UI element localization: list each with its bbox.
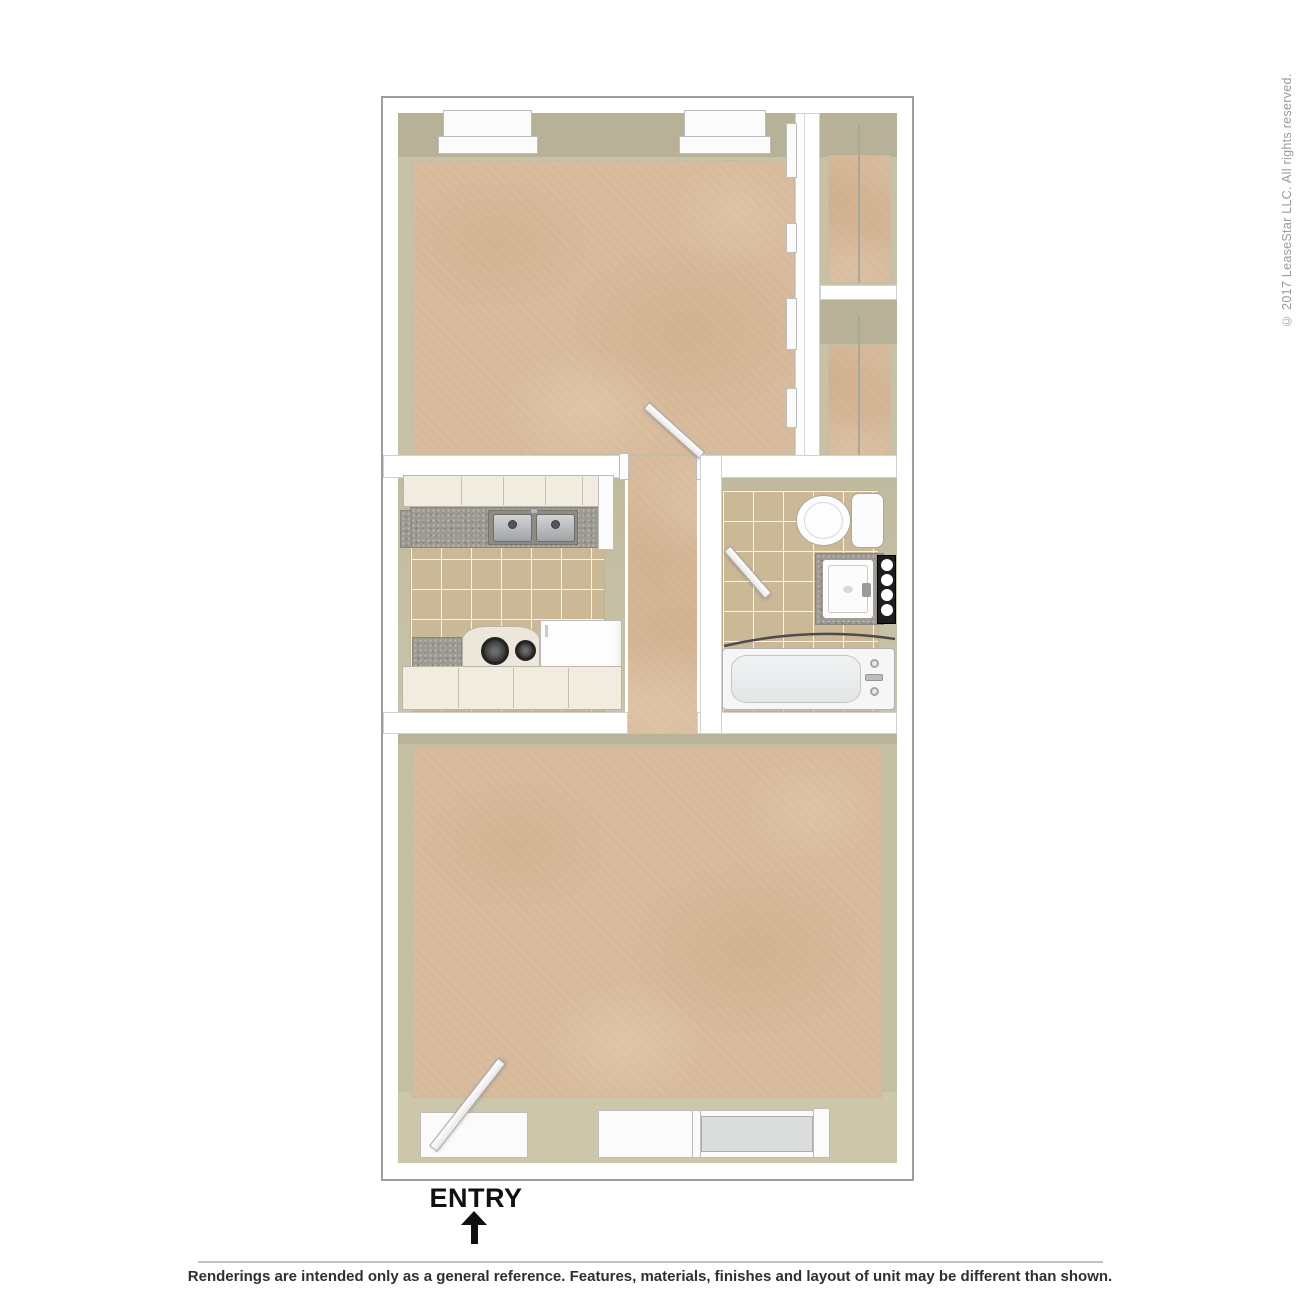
bedroom-window-2-sill <box>679 136 771 154</box>
sink-faucet <box>530 508 538 514</box>
bedroom-carpet <box>412 160 795 455</box>
bedroom-door-frame-left <box>619 453 629 480</box>
floor-plan-canvas <box>381 96 914 1181</box>
cabinet-door-line <box>513 668 514 708</box>
floor-plan-page: © 2017 LeaseStar LLC. All rights reserve… <box>0 0 1300 1300</box>
patio-frame-post-right <box>813 1108 830 1158</box>
bathtub-basin <box>731 655 861 703</box>
cabinet-door-line <box>458 668 459 708</box>
bedroom-window-1-sill <box>438 136 538 154</box>
stove-burner-left <box>481 637 509 665</box>
entry-label: ENTRY <box>396 1183 556 1214</box>
tub-handle-hot <box>870 659 879 668</box>
bathroom-left-wall <box>700 455 722 734</box>
sink-drain-right <box>551 520 560 529</box>
living-room-carpet <box>412 746 882 1098</box>
disclaimer-text: Renderings are intended only as a genera… <box>0 1268 1300 1285</box>
cabinet-door-line <box>568 668 569 708</box>
vanity-light-bulb <box>881 574 893 586</box>
bedroom-window-1 <box>443 110 532 138</box>
closet-slider-panel-4 <box>786 388 797 428</box>
tub-handle-cold <box>870 687 879 696</box>
closet-slider-panel-3 <box>786 298 797 350</box>
tub-spout <box>865 674 883 681</box>
hallway-carpet <box>628 455 697 747</box>
cabinet-door-line <box>461 477 462 505</box>
closet-slider-panel-2 <box>786 223 797 253</box>
bedroom-window-2 <box>684 110 766 138</box>
closet-slider-track <box>804 114 805 461</box>
patio-frame-post <box>692 1110 701 1158</box>
cabinet-door-line <box>503 477 504 505</box>
sliding-patio-door-panel <box>701 1116 813 1152</box>
vanity-faucet <box>862 583 871 597</box>
lower-wall-right <box>697 712 897 734</box>
toilet-bowl <box>796 495 851 546</box>
kitchen-counter-return <box>400 510 412 548</box>
vanity-light-bulb <box>881 589 893 601</box>
bathtub <box>722 648 895 710</box>
middle-wall-right <box>697 455 897 478</box>
toilet-seat <box>804 502 843 539</box>
sink-basin-right <box>536 514 575 542</box>
closet-slider-panel-1 <box>786 123 797 178</box>
entry-arrow-head <box>461 1211 487 1225</box>
refrigerator-handle <box>545 625 548 637</box>
closet-divider-wall <box>820 285 897 300</box>
footer-divider <box>198 1261 1103 1263</box>
closet-top-rod <box>858 125 860 283</box>
vanity-sink <box>822 559 874 619</box>
kitchen-sink <box>488 510 578 545</box>
kitchen-base-cabinets <box>402 666 622 710</box>
stove-burner-right <box>515 640 536 661</box>
entry-arrow-stem <box>471 1224 478 1244</box>
vanity-light-bar <box>877 555 896 624</box>
vanity-drain <box>843 586 853 593</box>
vanity-light-bulb <box>881 559 893 571</box>
toilet-tank <box>851 493 884 548</box>
refrigerator <box>540 620 622 672</box>
cabinet-door-line <box>582 477 583 505</box>
vanity-light-bulb <box>881 604 893 616</box>
kitchen-upper-cabinets <box>403 475 612 507</box>
lower-wall-left <box>383 712 628 734</box>
sink-basin-left <box>493 514 532 542</box>
closet-bottom-rod <box>858 315 860 456</box>
sink-drain-left <box>508 520 517 529</box>
stove <box>462 626 540 670</box>
cabinet-door-line <box>545 477 546 505</box>
kitchen-counter-endcap <box>598 475 614 550</box>
closet-slider-wall <box>795 113 820 462</box>
copyright-text: © 2017 LeaseStar LLC. All rights reserve… <box>1280 8 1294 328</box>
